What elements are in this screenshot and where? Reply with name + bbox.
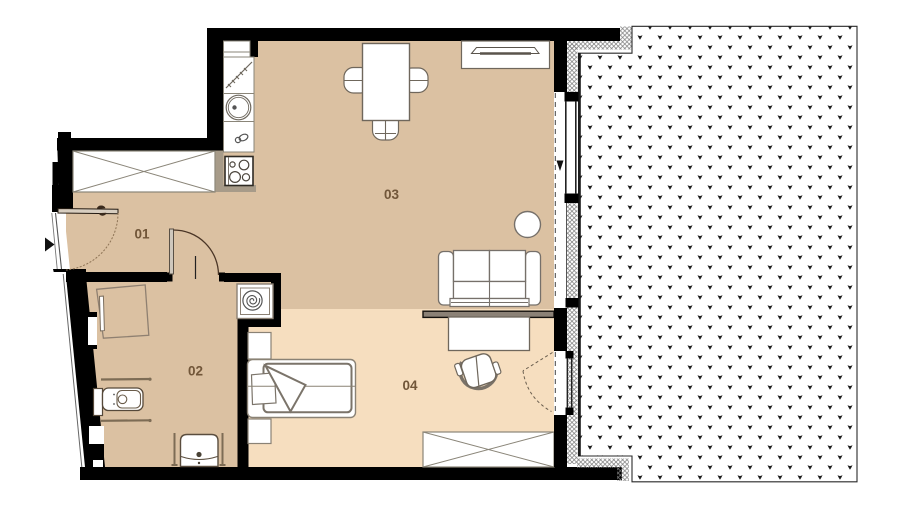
svg-text:03: 03 — [384, 187, 400, 202]
svg-text:04: 04 — [402, 378, 418, 393]
svg-text:01: 01 — [134, 227, 150, 242]
svg-text:02: 02 — [188, 364, 203, 379]
